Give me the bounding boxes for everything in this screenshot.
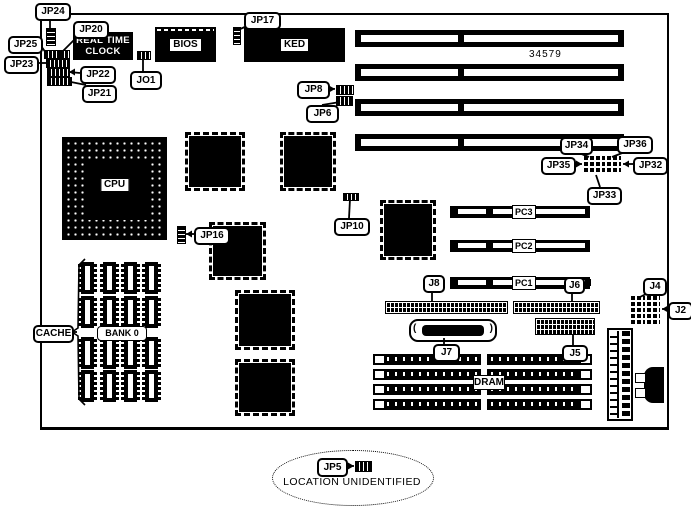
pc3-label: PC3: [512, 205, 536, 219]
callout-jo1: JO1: [130, 71, 162, 90]
callout-jp6: JP6: [306, 105, 339, 123]
power-connector: [607, 328, 633, 421]
callout-jp25: JP25: [8, 36, 43, 54]
pc1-label: PC1: [512, 276, 536, 290]
j2-connector: [647, 296, 660, 324]
bios-label: BIOS: [169, 38, 201, 52]
chip-qfp-5: [239, 294, 291, 346]
isa-slot-1: [355, 30, 624, 47]
j6-header: [513, 301, 600, 314]
j8-header: [385, 301, 508, 314]
callout-jp22: JP22: [80, 66, 116, 84]
callout-j4: J4: [643, 278, 667, 296]
pc2-slot: PC2: [450, 240, 590, 252]
callout-jp10: JP10: [334, 218, 370, 236]
jp5-jumper: [355, 461, 372, 472]
callout-jp32: JP32: [633, 157, 668, 175]
jp24-jumper: [46, 28, 56, 46]
note-text: LOCATION UNIDENTIFIED: [262, 476, 442, 488]
chip-qfp-6: [239, 363, 291, 412]
callout-jp24: JP24: [35, 3, 71, 21]
simm-slot-1: [373, 354, 592, 365]
callout-jp35: JP35: [541, 157, 576, 175]
j7-connector: [409, 319, 497, 342]
isa-slot-2: [355, 64, 624, 81]
pc1-end-pad: [586, 279, 591, 286]
jp17-jumper: [233, 27, 241, 45]
callout-j5: J5: [562, 345, 588, 362]
callout-jp23: JP23: [4, 56, 39, 74]
callout-j8: J8: [423, 275, 445, 293]
callout-j6: J6: [564, 277, 585, 294]
isa-slot-3: [355, 99, 624, 116]
cpu-socket: CPU: [62, 137, 167, 240]
callout-jp16: JP16: [194, 227, 230, 245]
callout-jp5: JP5: [317, 458, 348, 477]
chip-qfp-1: [189, 136, 241, 187]
jp21-jumper: [47, 77, 72, 86]
jp6-jumper: [336, 96, 353, 106]
keyboard-controller-chip: KED: [244, 28, 345, 62]
jo1-jumper: [137, 51, 151, 60]
callout-cache: CACHE: [33, 325, 74, 343]
jp8-jumper: [336, 85, 354, 95]
simm-slot-4: [373, 399, 592, 410]
chip-qfp-3: [384, 204, 432, 256]
callout-jp34: JP34: [560, 137, 593, 155]
jp20-jumper: [60, 50, 70, 59]
callout-jp8: JP8: [297, 81, 330, 99]
j4-connector: [631, 296, 645, 324]
bank0-label: BANK 0: [97, 326, 147, 341]
jp23-jumper: [46, 59, 70, 68]
dram-label: DRAM: [473, 375, 505, 390]
pc2-label: PC2: [512, 239, 536, 253]
callout-j7: J7: [433, 344, 460, 362]
jp16-jumper: [177, 226, 186, 244]
keyboard-din-connector: [644, 367, 664, 403]
jp25-jumper: [44, 50, 60, 59]
pc3-slot: PC3: [450, 206, 590, 218]
chip-qfp-2: [284, 136, 332, 187]
jp10-jumper: [343, 193, 359, 201]
callout-jp17: JP17: [244, 12, 281, 30]
callout-jp36: JP36: [617, 136, 653, 154]
callout-jp20: JP20: [73, 21, 109, 39]
jp22-jumper: [47, 68, 70, 77]
kbd-label: KED: [280, 38, 309, 52]
callout-jp21: JP21: [82, 85, 117, 103]
cpu-label: CPU: [100, 178, 129, 192]
motherboard-diagram: REAL TIME CLOCK BIOS KED 34579 CPU PC3 P…: [0, 0, 691, 506]
jp33-jumper-block-right: [607, 156, 621, 174]
j7-connector-slot: [422, 325, 484, 336]
jp33-jumper-block-left: [584, 156, 605, 174]
callout-jp33: JP33: [587, 187, 622, 205]
part-number: 34579: [529, 49, 562, 60]
rtc-label-line2: CLOCK: [85, 46, 120, 57]
bios-chip: BIOS: [155, 27, 216, 62]
callout-j2: J2: [668, 302, 691, 320]
j5-header: [535, 318, 595, 335]
